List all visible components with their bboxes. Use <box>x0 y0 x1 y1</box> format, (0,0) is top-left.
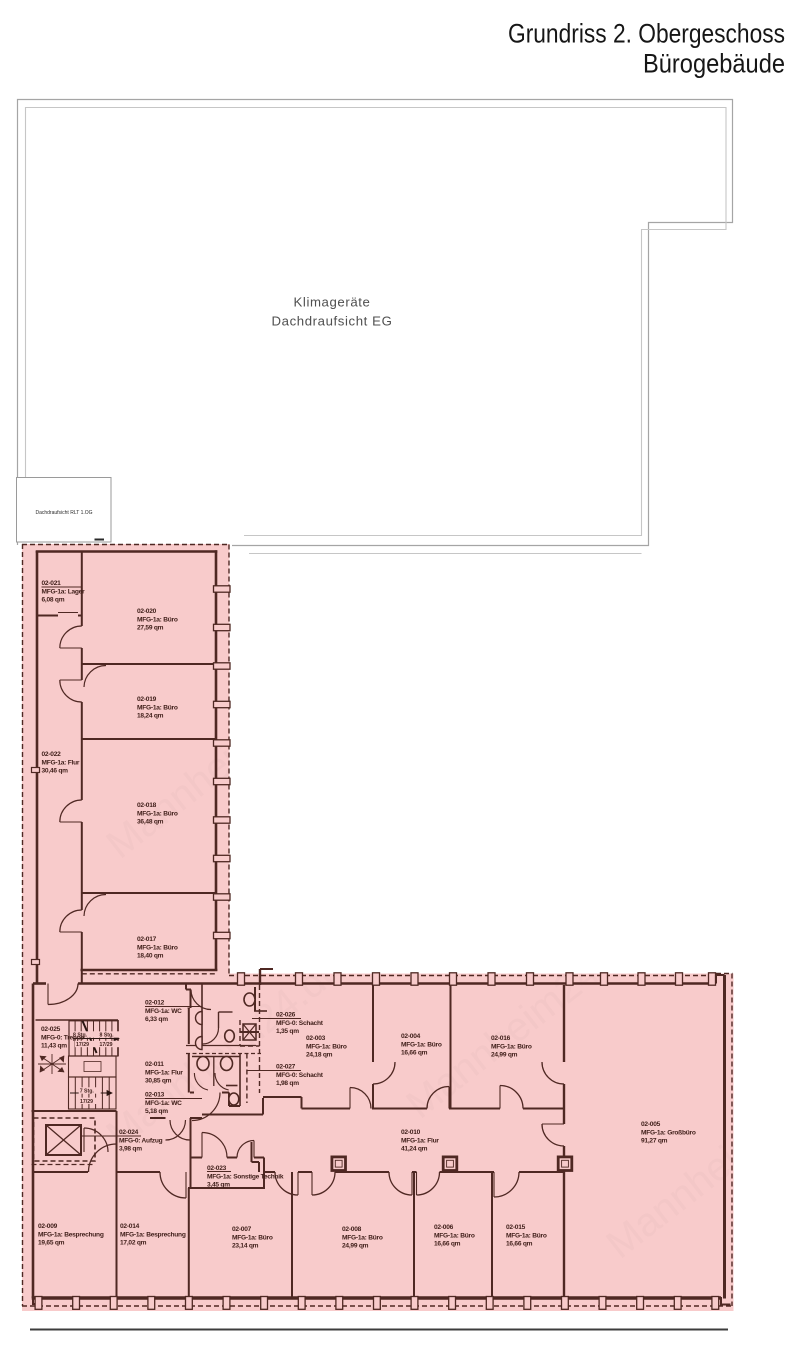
svg-text:MFG-1a: Großbüro: MFG-1a: Großbüro <box>641 1129 696 1136</box>
svg-text:24,18 qm: 24,18 qm <box>306 1052 333 1059</box>
svg-text:02-009: 02-009 <box>38 1223 58 1230</box>
svg-text:Dachdraufsicht EG: Dachdraufsicht EG <box>272 314 393 329</box>
svg-text:02-024: 02-024 <box>119 1129 139 1136</box>
svg-text:30,85 qm: 30,85 qm <box>145 1078 172 1085</box>
svg-text:17/29: 17/29 <box>100 1042 113 1048</box>
svg-text:MFG-1a: Büro: MFG-1a: Büro <box>506 1232 547 1239</box>
svg-text:91,27 qm: 91,27 qm <box>641 1138 668 1145</box>
svg-text:16,66 qm: 16,66 qm <box>434 1241 461 1248</box>
svg-text:16,66 qm: 16,66 qm <box>401 1050 428 1057</box>
svg-text:MFG-0: Schacht: MFG-0: Schacht <box>276 1020 324 1027</box>
svg-text:MFG-1a: Flur: MFG-1a: Flur <box>42 759 80 766</box>
svg-text:MFG-1a: Besprechung: MFG-1a: Besprechung <box>38 1231 104 1238</box>
svg-text:02-025: 02-025 <box>41 1026 61 1033</box>
svg-text:02-018: 02-018 <box>137 802 157 809</box>
svg-text:MFG-1a: Sonstige Technik: MFG-1a: Sonstige Technik <box>207 1173 284 1180</box>
svg-text:6,33 qm: 6,33 qm <box>145 1016 168 1023</box>
svg-text:MFG-0: Schacht: MFG-0: Schacht <box>276 1072 324 1079</box>
svg-text:11,43 qm: 11,43 qm <box>41 1043 67 1050</box>
svg-text:MFG-0: Aufzug: MFG-0: Aufzug <box>119 1137 163 1144</box>
svg-text:6,08 qm: 6,08 qm <box>42 597 65 604</box>
svg-text:16,66 qm: 16,66 qm <box>506 1241 533 1248</box>
svg-text:02-016: 02-016 <box>491 1035 511 1042</box>
svg-text:02-017: 02-017 <box>137 936 157 943</box>
svg-text:MFG-1a: Büro: MFG-1a: Büro <box>491 1043 532 1050</box>
svg-text:02-026: 02-026 <box>276 1012 296 1019</box>
svg-text:02-006: 02-006 <box>434 1224 454 1231</box>
svg-text:Klimageräte: Klimageräte <box>294 295 371 310</box>
svg-text:36,48 qm: 36,48 qm <box>137 819 164 826</box>
svg-text:02-011: 02-011 <box>145 1061 164 1068</box>
svg-text:02-010: 02-010 <box>401 1129 421 1136</box>
svg-text:MFG-1a: Büro: MFG-1a: Büro <box>434 1232 475 1239</box>
svg-text:02-013: 02-013 <box>145 1092 165 1099</box>
svg-text:Dachdraufsicht RLT 1.OG: Dachdraufsicht RLT 1.OG <box>35 510 92 516</box>
svg-text:02-027: 02-027 <box>276 1064 296 1071</box>
svg-text:18,24 qm: 18,24 qm <box>137 713 164 720</box>
svg-text:3,45 qm: 3,45 qm <box>207 1182 230 1189</box>
svg-text:1,98 qm: 1,98 qm <box>276 1080 299 1087</box>
svg-text:5,18 qm: 5,18 qm <box>145 1108 168 1115</box>
svg-text:Bürogebäude: Bürogebäude <box>643 49 785 79</box>
svg-text:MFG-1a: Büro: MFG-1a: Büro <box>401 1041 442 1048</box>
svg-text:MFG-1a: Büro: MFG-1a: Büro <box>232 1234 273 1241</box>
svg-text:MFG-1a: Flur: MFG-1a: Flur <box>401 1137 439 1144</box>
svg-text:17/29: 17/29 <box>76 1042 89 1048</box>
svg-text:02-004: 02-004 <box>401 1033 421 1040</box>
svg-text:MFG-1a: WC: MFG-1a: WC <box>145 1008 182 1015</box>
svg-text:30,46 qm: 30,46 qm <box>42 768 69 775</box>
svg-text:02-003: 02-003 <box>306 1035 326 1042</box>
svg-text:MFG-1a: Büro: MFG-1a: Büro <box>137 704 178 711</box>
svg-text:MFG-1a: Flur: MFG-1a: Flur <box>145 1069 183 1076</box>
svg-text:24,99 qm: 24,99 qm <box>342 1243 369 1250</box>
svg-text:02-023: 02-023 <box>207 1165 227 1172</box>
svg-text:02-014: 02-014 <box>120 1223 140 1230</box>
svg-text:MFG-0: Treppe: MFG-0: Treppe <box>41 1034 84 1041</box>
svg-text:23,14 qm: 23,14 qm <box>232 1243 259 1250</box>
svg-text:8 Stg.: 8 Stg. <box>100 1033 115 1039</box>
svg-text:02-021: 02-021 <box>42 580 62 587</box>
svg-text:MFG-1a: Büro: MFG-1a: Büro <box>306 1043 347 1050</box>
svg-text:19,65 qm: 19,65 qm <box>38 1240 65 1247</box>
svg-text:18,40 qm: 18,40 qm <box>137 953 164 960</box>
svg-text:27,59 qm: 27,59 qm <box>137 625 164 632</box>
svg-text:1,35 qm: 1,35 qm <box>276 1028 299 1035</box>
svg-text:24,99 qm: 24,99 qm <box>491 1052 518 1059</box>
svg-text:02-015: 02-015 <box>506 1224 526 1231</box>
svg-text:MFG-1a: WC: MFG-1a: WC <box>145 1100 182 1107</box>
svg-text:17,02 qm: 17,02 qm <box>120 1240 147 1247</box>
svg-text:17/29: 17/29 <box>80 1099 93 1105</box>
svg-text:02-019: 02-019 <box>137 696 157 703</box>
svg-text:3,98 qm: 3,98 qm <box>119 1146 142 1153</box>
svg-text:Grundriss 2. Obergeschoss: Grundriss 2. Obergeschoss <box>508 19 785 49</box>
svg-text:MFG-1a: Büro: MFG-1a: Büro <box>137 944 178 951</box>
svg-text:02-022: 02-022 <box>42 751 62 758</box>
svg-text:MFG-1a: Büro: MFG-1a: Büro <box>137 616 178 623</box>
svg-text:02-008: 02-008 <box>342 1226 362 1233</box>
svg-text:02-012: 02-012 <box>145 1000 165 1007</box>
svg-text:02-020: 02-020 <box>137 608 157 615</box>
svg-text:02-005: 02-005 <box>641 1121 661 1128</box>
svg-text:MFG-1a: Besprechung: MFG-1a: Besprechung <box>120 1231 186 1238</box>
svg-text:41,24 qm: 41,24 qm <box>401 1146 428 1153</box>
svg-text:MFG-1a: Lager: MFG-1a: Lager <box>42 588 86 595</box>
svg-text:02-007: 02-007 <box>232 1226 252 1233</box>
svg-text:MFG-1a: Büro: MFG-1a: Büro <box>342 1234 383 1241</box>
svg-text:7 Stg.: 7 Stg. <box>80 1089 95 1095</box>
svg-text:MFG-1a: Büro: MFG-1a: Büro <box>137 810 178 817</box>
